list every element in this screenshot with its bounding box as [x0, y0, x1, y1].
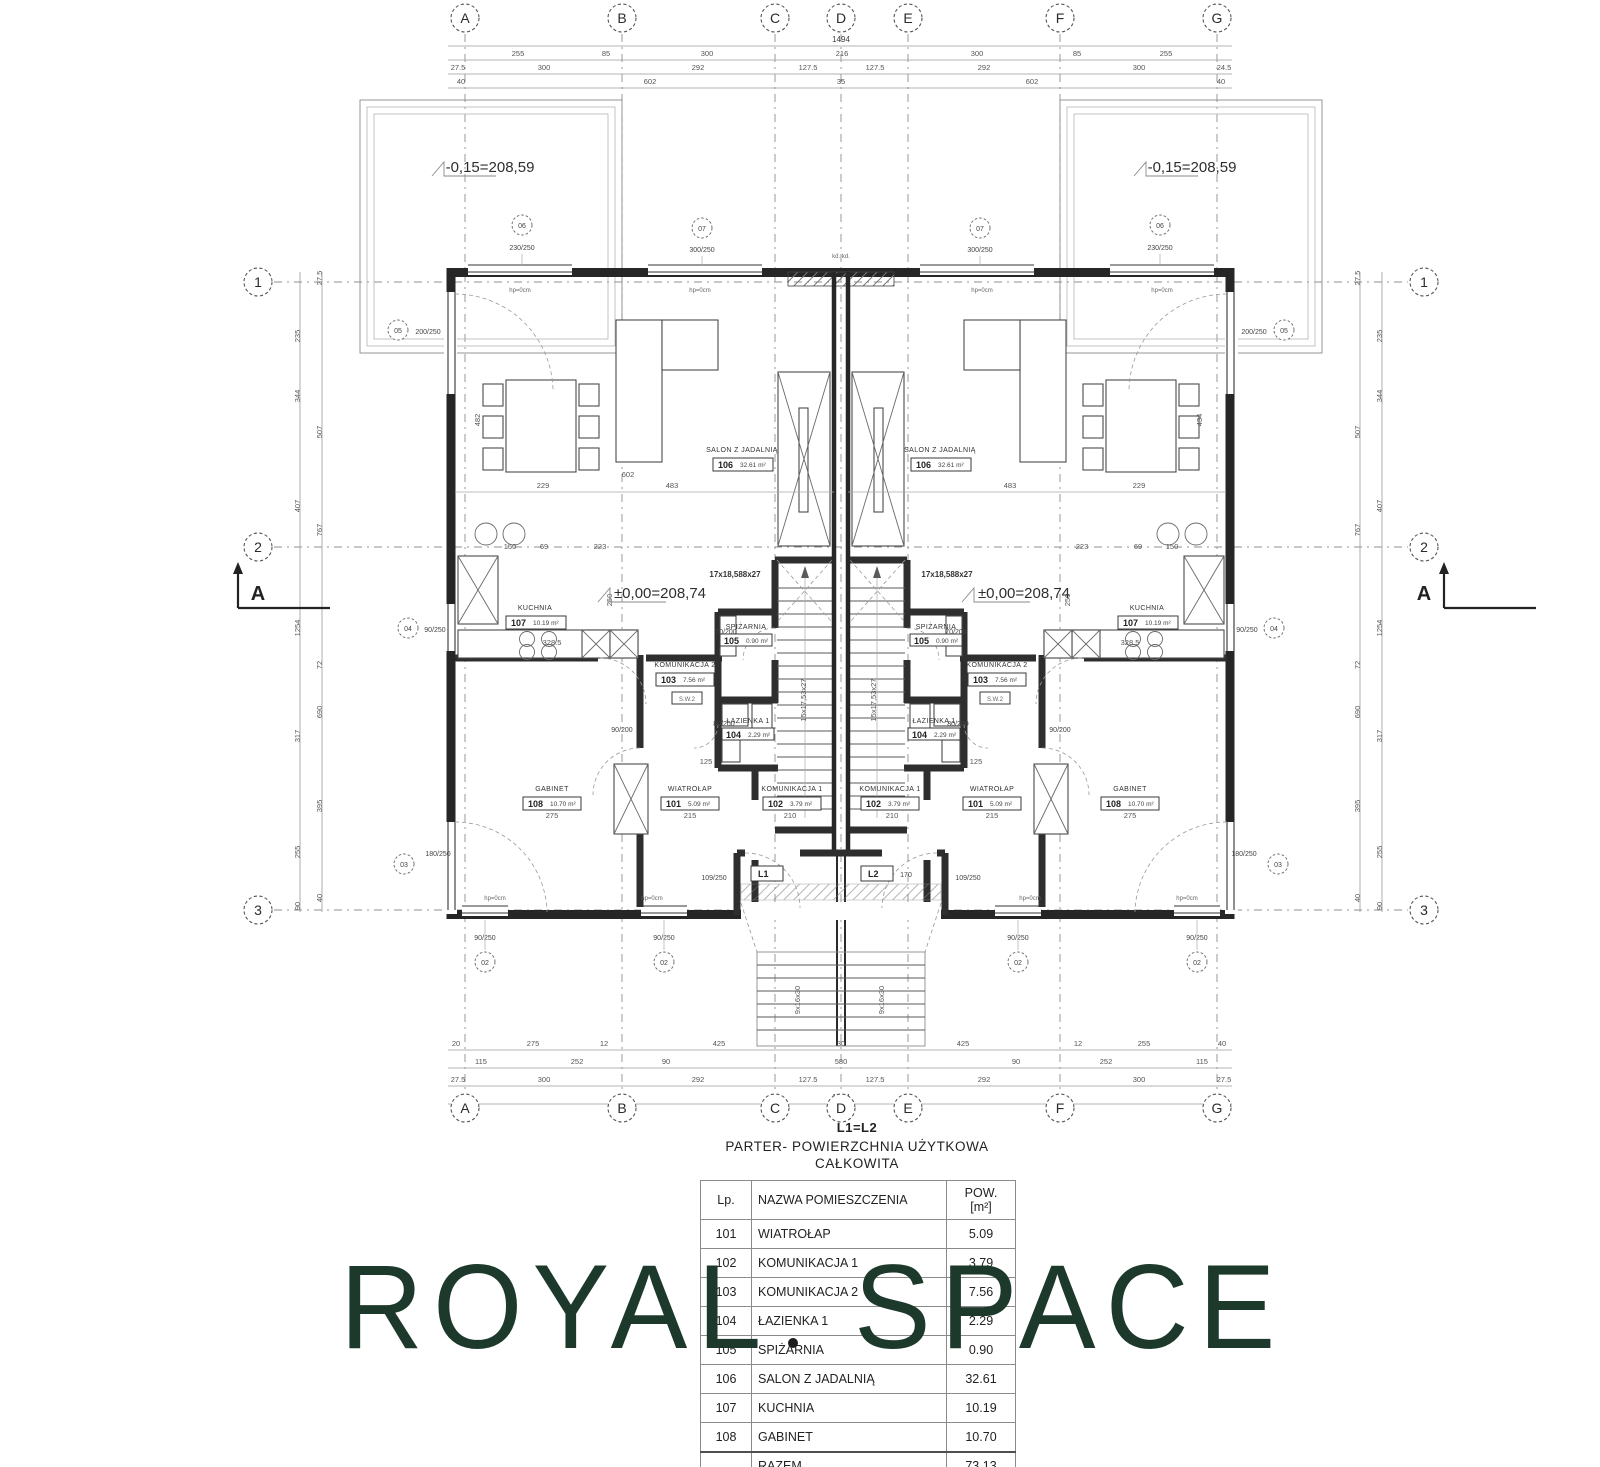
svg-text:105: 105 — [724, 636, 739, 646]
svg-text:150: 150 — [504, 542, 517, 551]
svg-text:12: 12 — [600, 1039, 608, 1048]
svg-text:90: 90 — [293, 902, 302, 910]
elevation-terrace-right: -0,15=208,59 — [1148, 159, 1237, 176]
schedule-titles: L1=L2 PARTER- POWIERZCHNIA UŻYTKOWA CAŁK… — [657, 1120, 1057, 1171]
svg-text:230/250: 230/250 — [509, 245, 534, 252]
svg-text:S.W.2: S.W.2 — [987, 697, 1004, 703]
svg-text:10.70 m²: 10.70 m² — [1128, 801, 1154, 808]
svg-text:580: 580 — [835, 1057, 848, 1066]
svg-text:S.W.2: S.W.2 — [679, 697, 696, 703]
svg-text:40: 40 — [1353, 894, 1362, 902]
svg-text:03: 03 — [400, 862, 408, 869]
svg-text:602: 602 — [622, 470, 635, 479]
svg-text:1254: 1254 — [1375, 620, 1384, 637]
svg-text:17x18,588x27: 17x18,588x27 — [921, 570, 973, 579]
svg-text:B: B — [617, 1100, 626, 1116]
svg-text:WIATROŁAP: WIATROŁAP — [970, 786, 1014, 793]
svg-text:101: 101 — [968, 799, 983, 809]
svg-text:27.5: 27.5 — [315, 271, 324, 286]
svg-text:72: 72 — [1353, 661, 1362, 669]
svg-text:27.5: 27.5 — [451, 1075, 466, 1084]
svg-text:255: 255 — [1138, 1039, 1151, 1048]
svg-text:7.56 m²: 7.56 m² — [995, 677, 1018, 684]
svg-text:275: 275 — [546, 811, 559, 820]
svg-text:06: 06 — [1156, 223, 1164, 230]
grid-lines — [274, 34, 1408, 1092]
svg-text:hp=0cm: hp=0cm — [1176, 896, 1198, 902]
svg-text:275: 275 — [1124, 811, 1137, 820]
total-label: RAZEM — [752, 1452, 947, 1467]
svg-text:40: 40 — [1217, 77, 1225, 86]
svg-text:215: 215 — [986, 811, 999, 820]
svg-text:F: F — [1056, 1100, 1065, 1116]
svg-text:102: 102 — [768, 799, 783, 809]
svg-text:103: 103 — [973, 675, 988, 685]
svg-text:hp=0cm: hp=0cm — [641, 896, 663, 902]
col-lp: Lp. — [701, 1181, 752, 1220]
svg-text:344: 344 — [293, 390, 302, 403]
svg-text:F: F — [1056, 10, 1065, 26]
svg-text:69: 69 — [1134, 542, 1142, 551]
svg-text:E: E — [903, 10, 912, 26]
svg-text:90/250: 90/250 — [1236, 627, 1258, 634]
svg-text:255: 255 — [293, 846, 302, 859]
svg-text:A: A — [460, 1100, 470, 1116]
svg-text:04: 04 — [404, 626, 412, 633]
schedule-title: PARTER- POWIERZCHNIA UŻYTKOWA — [657, 1139, 1057, 1154]
svg-text:235: 235 — [1375, 330, 1384, 343]
terrace-left — [360, 100, 622, 353]
svg-text:150: 150 — [1166, 542, 1179, 551]
svg-text:KUCHNIA: KUCHNIA — [1130, 605, 1164, 612]
svg-text:hp=0cm: hp=0cm — [484, 896, 506, 902]
svg-text:12: 12 — [1074, 1039, 1082, 1048]
svg-text:G: G — [1212, 1100, 1223, 1116]
svg-text:102: 102 — [866, 799, 881, 809]
svg-text:32.61 m²: 32.61 m² — [740, 462, 766, 469]
svg-text:D: D — [836, 10, 846, 26]
svg-text:2: 2 — [254, 539, 262, 555]
svg-text:229: 229 — [1133, 481, 1146, 490]
svg-text:3: 3 — [1420, 902, 1428, 918]
terrace-right — [1060, 100, 1322, 353]
room-name-komunikacja2: KOMUNIKACJA 2 — [654, 662, 715, 669]
svg-text:180/250: 180/250 — [425, 851, 450, 858]
svg-text:170: 170 — [900, 872, 912, 879]
svg-text:230/250: 230/250 — [1147, 245, 1172, 252]
room-name-gabinet: GABINET — [535, 786, 569, 793]
svg-text:10.19 m²: 10.19 m² — [1145, 620, 1171, 627]
svg-text:35: 35 — [837, 77, 845, 86]
svg-text:02: 02 — [660, 960, 668, 967]
svg-text:210: 210 — [886, 811, 899, 820]
table-row: 108 GABINET 10.70 — [701, 1423, 1016, 1453]
svg-text:215: 215 — [684, 811, 697, 820]
svg-text:275: 275 — [527, 1039, 540, 1048]
svg-text:hp=0cm: hp=0cm — [971, 288, 993, 294]
svg-text:767: 767 — [1353, 524, 1362, 537]
svg-text:767: 767 — [315, 524, 324, 537]
svg-text:hp=0cm: hp=0cm — [689, 288, 711, 294]
svg-text:482: 482 — [473, 414, 482, 427]
svg-text:252: 252 — [571, 1057, 584, 1066]
svg-text:1: 1 — [1420, 274, 1428, 290]
svg-text:344: 344 — [1375, 390, 1384, 403]
svg-text:90: 90 — [662, 1057, 670, 1066]
svg-text:223: 223 — [1076, 542, 1089, 551]
svg-text:69: 69 — [540, 542, 548, 551]
svg-text:317: 317 — [293, 730, 302, 743]
svg-text:1: 1 — [254, 274, 262, 290]
svg-text:507: 507 — [315, 426, 324, 439]
chimney-block — [788, 272, 894, 286]
svg-text:A: A — [251, 583, 265, 605]
svg-text:C: C — [770, 10, 780, 26]
svg-text:04: 04 — [1270, 626, 1278, 633]
svg-text:602: 602 — [1026, 77, 1039, 86]
svg-text:255: 255 — [512, 49, 525, 58]
svg-text:602: 602 — [644, 77, 657, 86]
svg-text:200/250: 200/250 — [1241, 329, 1266, 336]
svg-text:hp=0cm: hp=0cm — [509, 288, 531, 294]
svg-text:03: 03 — [1274, 862, 1282, 869]
logo-dot — [788, 1338, 798, 1348]
col-name: NAZWA POMIESZCZENIA — [752, 1181, 947, 1220]
svg-text:30: 30 — [837, 1039, 845, 1048]
svg-text:250: 250 — [605, 594, 614, 607]
svg-text:GABINET: GABINET — [1113, 786, 1147, 793]
svg-text:90/200: 90/200 — [611, 727, 633, 734]
svg-text:300/250: 300/250 — [967, 247, 992, 254]
svg-text:2: 2 — [1420, 539, 1428, 555]
svg-text:106: 106 — [718, 460, 733, 470]
svg-text:02: 02 — [481, 960, 489, 967]
svg-text:690: 690 — [1353, 706, 1362, 719]
svg-text:90/250: 90/250 — [424, 627, 446, 634]
svg-text:9x16x30: 9x16x30 — [793, 986, 802, 1014]
svg-text:A: A — [1417, 583, 1431, 605]
svg-text:15x17,53x27: 15x17,53x27 — [799, 679, 808, 722]
svg-text:300/250: 300/250 — [689, 247, 714, 254]
svg-text:1494: 1494 — [832, 35, 850, 44]
svg-text:SALON Z JADALNIĄ: SALON Z JADALNIĄ — [904, 447, 976, 454]
svg-text:9x16x30: 9x16x30 — [877, 986, 886, 1014]
svg-text:180/250: 180/250 — [1231, 851, 1256, 858]
room-name-wiatrolap: WIATROŁAP — [668, 786, 712, 793]
svg-text:27.5: 27.5 — [1353, 271, 1362, 286]
svg-text:101: 101 — [666, 799, 681, 809]
svg-text:425: 425 — [957, 1039, 970, 1048]
svg-text:292: 292 — [692, 1075, 705, 1084]
room-labels: SALON Z JADALNIĄ 106 32.61 m² SALON Z JA… — [506, 447, 1178, 810]
svg-text:27.5: 27.5 — [451, 63, 466, 72]
svg-text:32.61 m²: 32.61 m² — [938, 462, 964, 469]
svg-text:72: 72 — [315, 661, 324, 669]
svg-text:317: 317 — [1375, 730, 1384, 743]
svg-text:395: 395 — [315, 800, 324, 813]
svg-text:216: 216 — [836, 49, 849, 58]
svg-text:3: 3 — [254, 902, 262, 918]
svg-text:07: 07 — [976, 226, 984, 233]
svg-text:90: 90 — [1375, 902, 1384, 910]
svg-text:300: 300 — [971, 49, 984, 58]
svg-text:425: 425 — [713, 1039, 726, 1048]
entry-tag-l1: L1 — [758, 869, 769, 879]
svg-text:A: A — [460, 10, 470, 26]
svg-text:252: 252 — [1100, 1057, 1113, 1066]
svg-text:300: 300 — [538, 1075, 551, 1084]
svg-text:05: 05 — [394, 328, 402, 335]
svg-text:105: 105 — [914, 636, 929, 646]
room-name-komunikacja1: KOMUNIKACJA 1 — [761, 786, 822, 793]
svg-text:2.29 m²: 2.29 m² — [748, 732, 771, 739]
svg-text:292: 292 — [692, 63, 705, 72]
svg-text:104: 104 — [912, 730, 927, 740]
svg-text:200/250: 200/250 — [415, 329, 440, 336]
svg-text:05: 05 — [1280, 328, 1288, 335]
svg-text:483: 483 — [666, 481, 679, 490]
table-total-row: RAZEM 73.13 — [701, 1452, 1016, 1467]
svg-text:0.90 m²: 0.90 m² — [936, 638, 959, 645]
drawing-sheet: 1494 255 85 300 216 300 85 255 27.5 300 … — [0, 0, 1600, 1467]
royal-space-logo: ROYAL SPACE — [340, 1248, 1285, 1368]
svg-text:690: 690 — [315, 706, 324, 719]
svg-text:1254: 1254 — [293, 620, 302, 637]
svg-text:06: 06 — [518, 223, 526, 230]
svg-text:D: D — [836, 1100, 846, 1116]
elevation-terrace-left: -0,15=208,59 — [446, 159, 535, 176]
svg-text:328.5: 328.5 — [543, 638, 562, 647]
svg-text:210: 210 — [784, 811, 797, 820]
svg-text:125: 125 — [970, 757, 983, 766]
svg-text:90: 90 — [1012, 1057, 1020, 1066]
svg-text:90/200: 90/200 — [1049, 727, 1071, 734]
svg-text:B: B — [617, 10, 626, 26]
table-row: 107 KUCHNIA 10.19 — [701, 1394, 1016, 1423]
svg-text:20: 20 — [452, 1039, 460, 1048]
svg-text:292: 292 — [978, 1075, 991, 1084]
svg-text:hp=0cm: hp=0cm — [1019, 896, 1041, 902]
svg-text:127.5: 127.5 — [799, 1075, 818, 1084]
schedule-subtitle: L1=L2 — [657, 1120, 1057, 1135]
svg-text:02: 02 — [1014, 960, 1022, 967]
exterior-walls — [451, 273, 1230, 915]
svg-text:115: 115 — [1196, 1057, 1208, 1066]
svg-text:103: 103 — [661, 675, 676, 685]
svg-text:27.5: 27.5 — [1217, 1075, 1232, 1084]
svg-text:10.70 m²: 10.70 m² — [550, 801, 576, 808]
svg-text:80/200: 80/200 — [947, 721, 969, 728]
svg-text:C: C — [770, 1100, 780, 1116]
svg-text:07: 07 — [698, 226, 706, 233]
svg-text:127.5: 127.5 — [866, 1075, 885, 1084]
svg-text:300: 300 — [1133, 63, 1146, 72]
svg-text:0.90 m²: 0.90 m² — [746, 638, 769, 645]
interior-walls — [455, 560, 834, 907]
svg-text:300: 300 — [701, 49, 714, 58]
svg-text:70/200: 70/200 — [715, 629, 737, 636]
svg-text:223: 223 — [594, 542, 607, 551]
svg-text:125: 125 — [700, 757, 713, 766]
entry-tag-l2: L2 — [868, 869, 879, 879]
svg-text:70/200: 70/200 — [945, 629, 967, 636]
svg-text:02: 02 — [1193, 960, 1201, 967]
svg-text:E: E — [903, 1100, 912, 1116]
svg-text:407: 407 — [1375, 500, 1384, 513]
svg-text:107: 107 — [511, 618, 526, 628]
svg-text:40: 40 — [457, 77, 465, 86]
svg-text:kd. kd.: kd. kd. — [832, 254, 850, 260]
svg-text:3.79 m²: 3.79 m² — [888, 801, 911, 808]
room-name-kuchnia: KUCHNIA — [518, 605, 552, 612]
svg-text:15x17,53x27: 15x17,53x27 — [869, 679, 878, 722]
schedule-title-2: CAŁKOWITA — [657, 1156, 1057, 1171]
svg-text:7.56 m²: 7.56 m² — [683, 677, 706, 684]
svg-text:KOMUNIKACJA 1: KOMUNIKACJA 1 — [859, 786, 920, 793]
svg-text:109/250: 109/250 — [955, 875, 980, 882]
svg-text:395: 395 — [1353, 800, 1362, 813]
svg-text:85: 85 — [1073, 49, 1081, 58]
svg-text:KOMUNIKACJA 2: KOMUNIKACJA 2 — [966, 662, 1027, 669]
svg-text:255: 255 — [1160, 49, 1173, 58]
svg-text:255: 255 — [1375, 846, 1384, 859]
svg-text:85: 85 — [602, 49, 610, 58]
svg-text:40: 40 — [1218, 1039, 1226, 1048]
svg-text:407: 407 — [293, 500, 302, 513]
elevation-floor-left: ±0,00=208,74 — [614, 585, 706, 602]
svg-text:40: 40 — [315, 894, 324, 902]
svg-text:507: 507 — [1353, 426, 1362, 439]
svg-text:483: 483 — [1004, 481, 1017, 490]
svg-text:108: 108 — [1106, 799, 1121, 809]
svg-text:106: 106 — [916, 460, 931, 470]
svg-text:5.09 m²: 5.09 m² — [688, 801, 711, 808]
col-pow: POW.[m²] — [947, 1181, 1016, 1220]
svg-text:127.5: 127.5 — [799, 63, 818, 72]
svg-text:17x18,588x27: 17x18,588x27 — [709, 570, 761, 579]
svg-text:300: 300 — [538, 63, 551, 72]
total-value: 73.13 — [947, 1452, 1016, 1467]
svg-text:328.5: 328.5 — [1121, 638, 1140, 647]
svg-text:G: G — [1212, 10, 1223, 26]
svg-text:hp=0cm: hp=0cm — [1151, 288, 1173, 294]
svg-text:5.09 m²: 5.09 m² — [990, 801, 1013, 808]
svg-text:10.19 m²: 10.19 m² — [533, 620, 559, 627]
svg-text:109/250: 109/250 — [701, 875, 726, 882]
svg-text:104: 104 — [726, 730, 741, 740]
svg-text:235: 235 — [293, 330, 302, 343]
elevation-floor-right: ±0,00=208,74 — [978, 585, 1070, 602]
svg-text:108: 108 — [528, 799, 543, 809]
svg-text:2.29 m²: 2.29 m² — [934, 732, 957, 739]
svg-text:292: 292 — [978, 63, 991, 72]
svg-text:107: 107 — [1123, 618, 1138, 628]
svg-text:434: 434 — [1195, 414, 1204, 427]
svg-text:80/200: 80/200 — [713, 721, 735, 728]
svg-text:300: 300 — [1133, 1075, 1146, 1084]
svg-text:24.5: 24.5 — [1217, 63, 1232, 72]
svg-text:115: 115 — [475, 1057, 487, 1066]
table-header-row: Lp. NAZWA POMIESZCZENIA POW.[m²] — [701, 1181, 1016, 1220]
room-name-salon: SALON Z JADALNIĄ — [706, 447, 778, 454]
svg-text:229: 229 — [537, 481, 550, 490]
svg-text:3.79 m²: 3.79 m² — [790, 801, 813, 808]
svg-text:127.5: 127.5 — [866, 63, 885, 72]
